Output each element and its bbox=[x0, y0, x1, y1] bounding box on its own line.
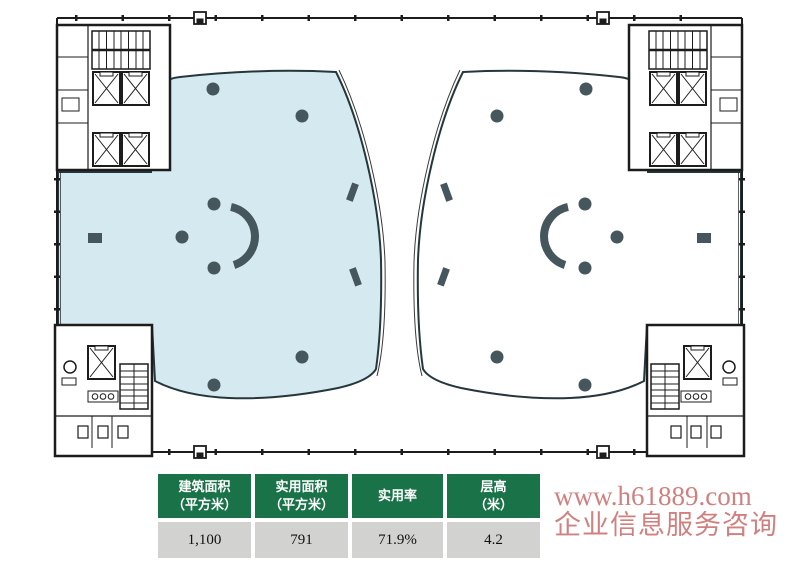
header-floor-height: 层高 （米） bbox=[447, 474, 540, 518]
header-efficiency: 实用率 bbox=[352, 474, 443, 518]
watermark-caption: 企业信息服务咨询 bbox=[554, 511, 778, 540]
core-bottom-left bbox=[55, 325, 152, 456]
grid-column-marker bbox=[194, 446, 206, 458]
watermark-url: www.h61889.com bbox=[554, 482, 778, 511]
core-top-right bbox=[629, 25, 742, 170]
floor-plan-drawing bbox=[0, 0, 799, 468]
header-usable-area: 实用面积 （平方米） bbox=[255, 474, 348, 518]
core-top-left bbox=[57, 25, 170, 170]
grid-column-marker bbox=[597, 446, 609, 458]
header-gross-area: 建筑面积 （平方米） bbox=[158, 474, 251, 518]
core-bottom-right bbox=[647, 325, 744, 456]
value-floor-height: 4.2 bbox=[447, 522, 540, 558]
watermark: www.h61889.com 企业信息服务咨询 bbox=[554, 482, 778, 540]
grid-column-marker bbox=[597, 12, 609, 24]
value-usable-area: 791 bbox=[255, 522, 348, 558]
floor-plan-page: 建筑面积 （平方米） 实用面积 （平方米） 实用率 层高 （米） 1,100 7… bbox=[0, 0, 799, 571]
value-gross-area: 1,100 bbox=[158, 522, 251, 558]
value-efficiency: 71.9% bbox=[352, 522, 443, 558]
grid-column-marker bbox=[194, 12, 206, 24]
area-spec-table: 建筑面积 （平方米） 实用面积 （平方米） 实用率 层高 （米） 1,100 7… bbox=[158, 474, 540, 558]
